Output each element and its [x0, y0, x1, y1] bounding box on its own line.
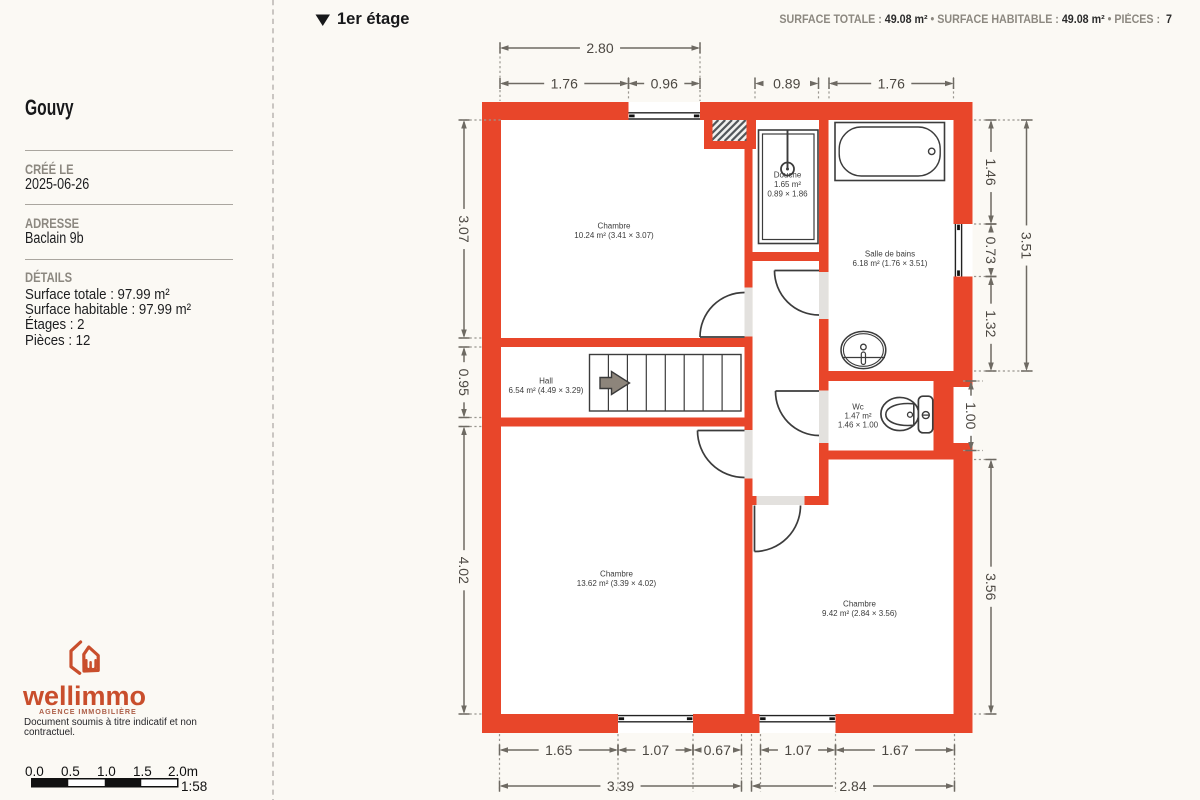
svg-text:Wc: Wc: [852, 402, 864, 411]
svg-text:0.96: 0.96: [651, 76, 678, 92]
svg-text:0.73: 0.73: [983, 237, 999, 264]
svg-text:0.89: 0.89: [773, 76, 800, 92]
svg-text:6.18 m² (1.76 × 3.51): 6.18 m² (1.76 × 3.51): [853, 259, 928, 268]
svg-text:Chambre: Chambre: [843, 600, 876, 609]
svg-text:0.95: 0.95: [456, 369, 472, 396]
svg-text:3.39: 3.39: [607, 778, 634, 794]
svg-text:1.46 × 1.00: 1.46 × 1.00: [838, 420, 879, 429]
svg-text:1.07: 1.07: [642, 742, 669, 758]
svg-text:1.67: 1.67: [881, 742, 908, 758]
svg-text:1.65 m²: 1.65 m²: [774, 180, 801, 189]
svg-text:3.56: 3.56: [983, 573, 999, 600]
svg-text:9.42 m² (2.84 × 3.56): 9.42 m² (2.84 × 3.56): [822, 609, 897, 618]
svg-text:Hall: Hall: [539, 377, 553, 386]
svg-text:6.54 m² (4.49 × 3.29): 6.54 m² (4.49 × 3.29): [509, 386, 584, 395]
svg-text:3.07: 3.07: [456, 215, 472, 242]
svg-text:1.76: 1.76: [878, 76, 905, 92]
svg-text:1.65: 1.65: [545, 742, 572, 758]
svg-text:4.02: 4.02: [456, 557, 472, 584]
svg-text:2.80: 2.80: [586, 40, 613, 56]
svg-text:0.67: 0.67: [704, 742, 731, 758]
svg-text:10.24 m² (3.41 × 3.07): 10.24 m² (3.41 × 3.07): [574, 231, 654, 240]
svg-text:2.84: 2.84: [839, 778, 866, 794]
svg-text:Chambre: Chambre: [600, 570, 633, 579]
svg-text:1.32: 1.32: [983, 310, 999, 337]
svg-text:0.89 × 1.86: 0.89 × 1.86: [767, 189, 808, 198]
svg-text:1.07: 1.07: [784, 742, 811, 758]
svg-text:1.46: 1.46: [983, 158, 999, 185]
svg-text:Salle de bains: Salle de bains: [865, 250, 915, 259]
svg-text:1.47 m²: 1.47 m²: [844, 411, 871, 420]
svg-text:1.76: 1.76: [551, 76, 578, 92]
svg-text:Douche: Douche: [774, 171, 802, 180]
svg-text:Chambre: Chambre: [598, 222, 631, 231]
svg-text:13.62 m² (3.39 × 4.02): 13.62 m² (3.39 × 4.02): [577, 579, 657, 588]
svg-text:3.51: 3.51: [1019, 232, 1035, 259]
svg-text:1.00: 1.00: [963, 402, 979, 429]
